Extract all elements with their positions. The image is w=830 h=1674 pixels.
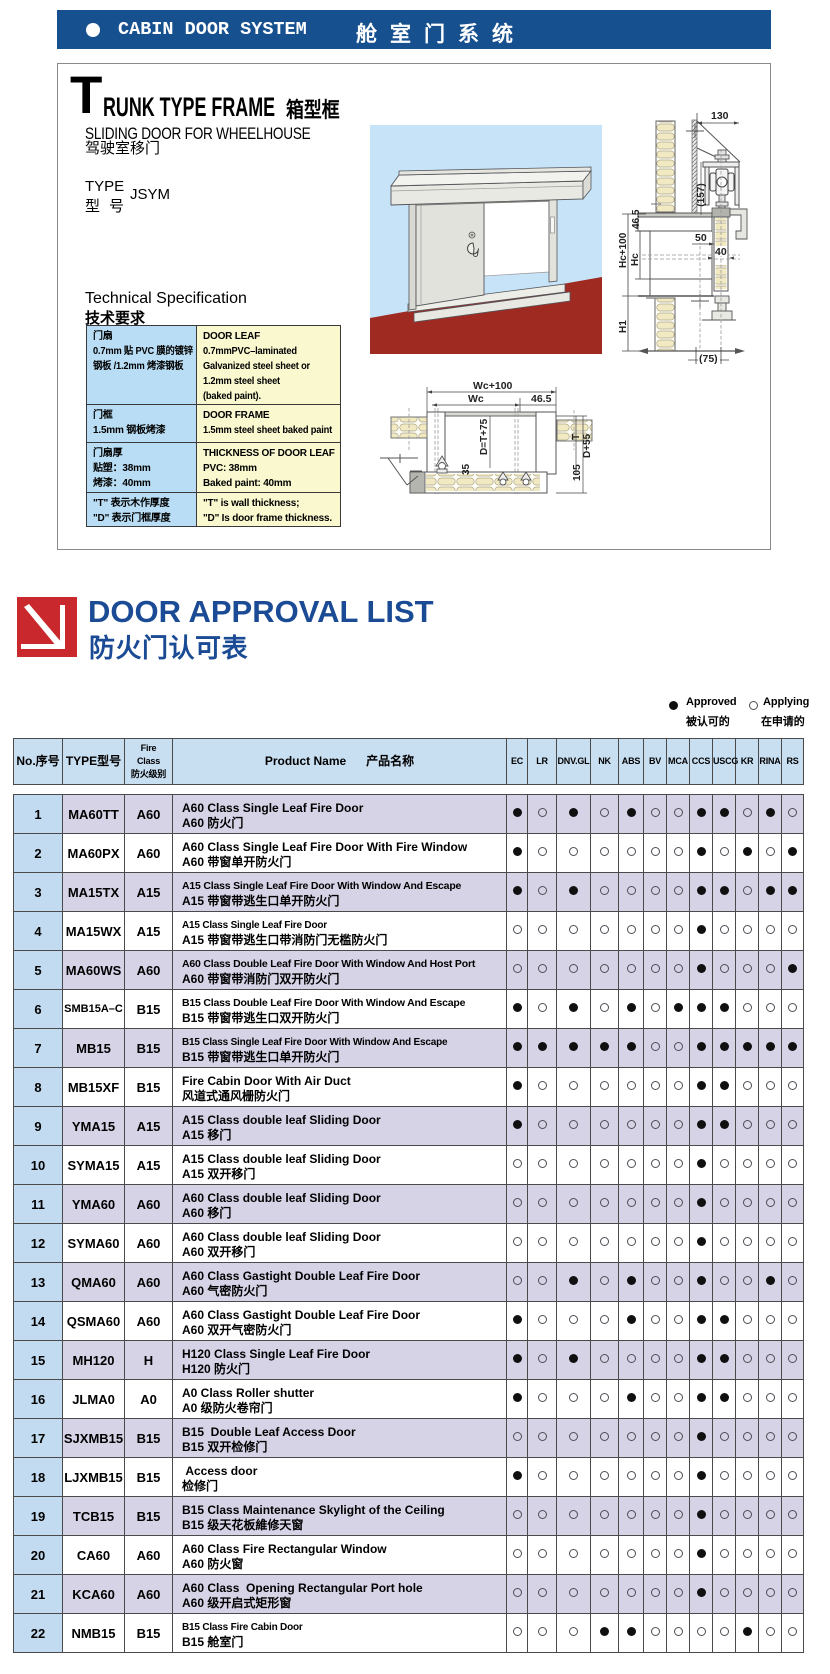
svg-text:46.5: 46.5: [531, 393, 552, 405]
svg-text:130: 130: [711, 110, 729, 122]
svg-text:Hc+100: Hc+100: [618, 232, 629, 268]
svg-text:D+55: D+55: [582, 433, 593, 458]
svg-text:(75): (75): [699, 353, 718, 365]
svg-text:35: 35: [461, 463, 472, 475]
svg-text:H1: H1: [618, 320, 629, 333]
svg-text:Wc: Wc: [468, 393, 484, 405]
svg-text:T: T: [571, 434, 582, 440]
svg-text:50: 50: [695, 232, 707, 244]
svg-text:40: 40: [715, 246, 727, 258]
svg-text:46.5: 46.5: [631, 209, 642, 229]
svg-text:(157): (157): [696, 183, 707, 206]
svg-text:Hc: Hc: [630, 253, 641, 266]
svg-text:D=T+75: D=T+75: [479, 418, 490, 455]
svg-text:Wc+100: Wc+100: [473, 380, 513, 392]
svg-text:105: 105: [572, 464, 583, 481]
